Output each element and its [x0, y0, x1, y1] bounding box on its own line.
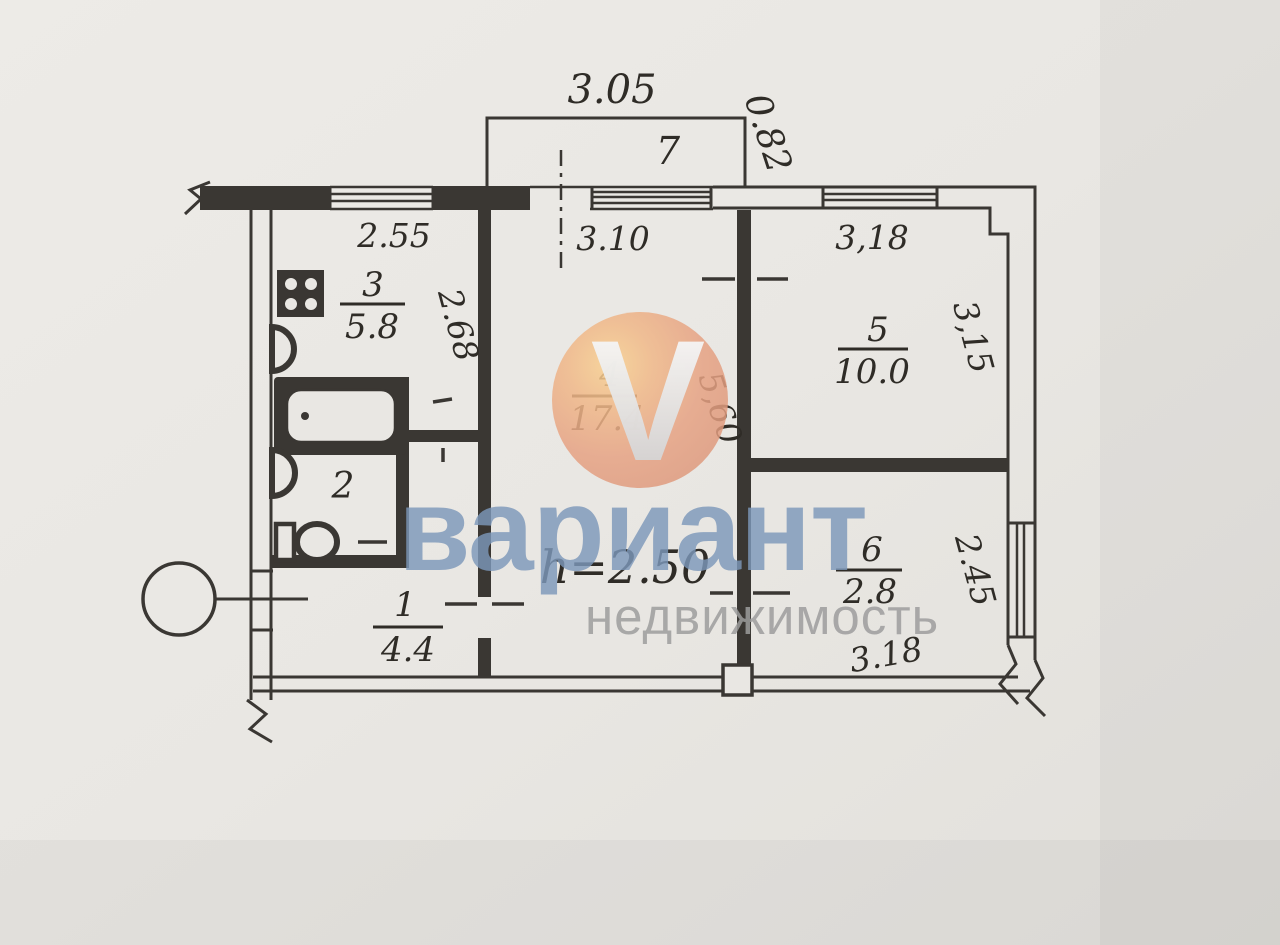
- watermark-brand: вариант: [398, 464, 867, 596]
- wall-junction-post: [723, 665, 752, 695]
- room-hall-area: 4.4: [380, 630, 435, 670]
- paper-shadow-bottom: [0, 840, 1280, 945]
- dim-kitchen-width: 2.55: [356, 216, 430, 255]
- floor-plan-drawing: 3.05 7 0.82 2.55 3 5.8 2.68 3.10 3,18 5 …: [0, 0, 1280, 945]
- top-wall-segment-mid: [433, 186, 530, 210]
- stove-icon: [277, 270, 324, 317]
- dim-balcony-width: 3.05: [567, 67, 656, 113]
- room-bathroom-number: 2: [331, 466, 355, 507]
- watermark-subtitle: недвижимость: [585, 588, 939, 645]
- floor-plan-scan: 3.05 7 0.82 2.55 3 5.8 2.68 3.10 3,18 5 …: [0, 0, 1280, 945]
- room-balcony-number: 7: [656, 129, 681, 173]
- room-bedroom-number: 5: [867, 310, 889, 350]
- room-bedroom-area: 10.0: [834, 352, 910, 392]
- toilet-icon: [276, 524, 337, 560]
- washbasin-icon: [272, 450, 295, 496]
- paper-shadow-right: [1100, 0, 1280, 945]
- room-kitchen-number: 3: [362, 265, 384, 305]
- inner-wall-hall-living-low: [478, 638, 491, 677]
- kitchen-sink-icon: [272, 327, 294, 371]
- dim-bedroom-width: 3,18: [835, 218, 908, 257]
- top-wall-segment-left: [200, 186, 330, 210]
- dim-living-width: 3.10: [576, 219, 649, 258]
- room-kitchen-area: 5.8: [345, 307, 399, 347]
- kitchen-bath-wall-stub: [406, 430, 478, 442]
- bathtub-icon: [274, 377, 406, 455]
